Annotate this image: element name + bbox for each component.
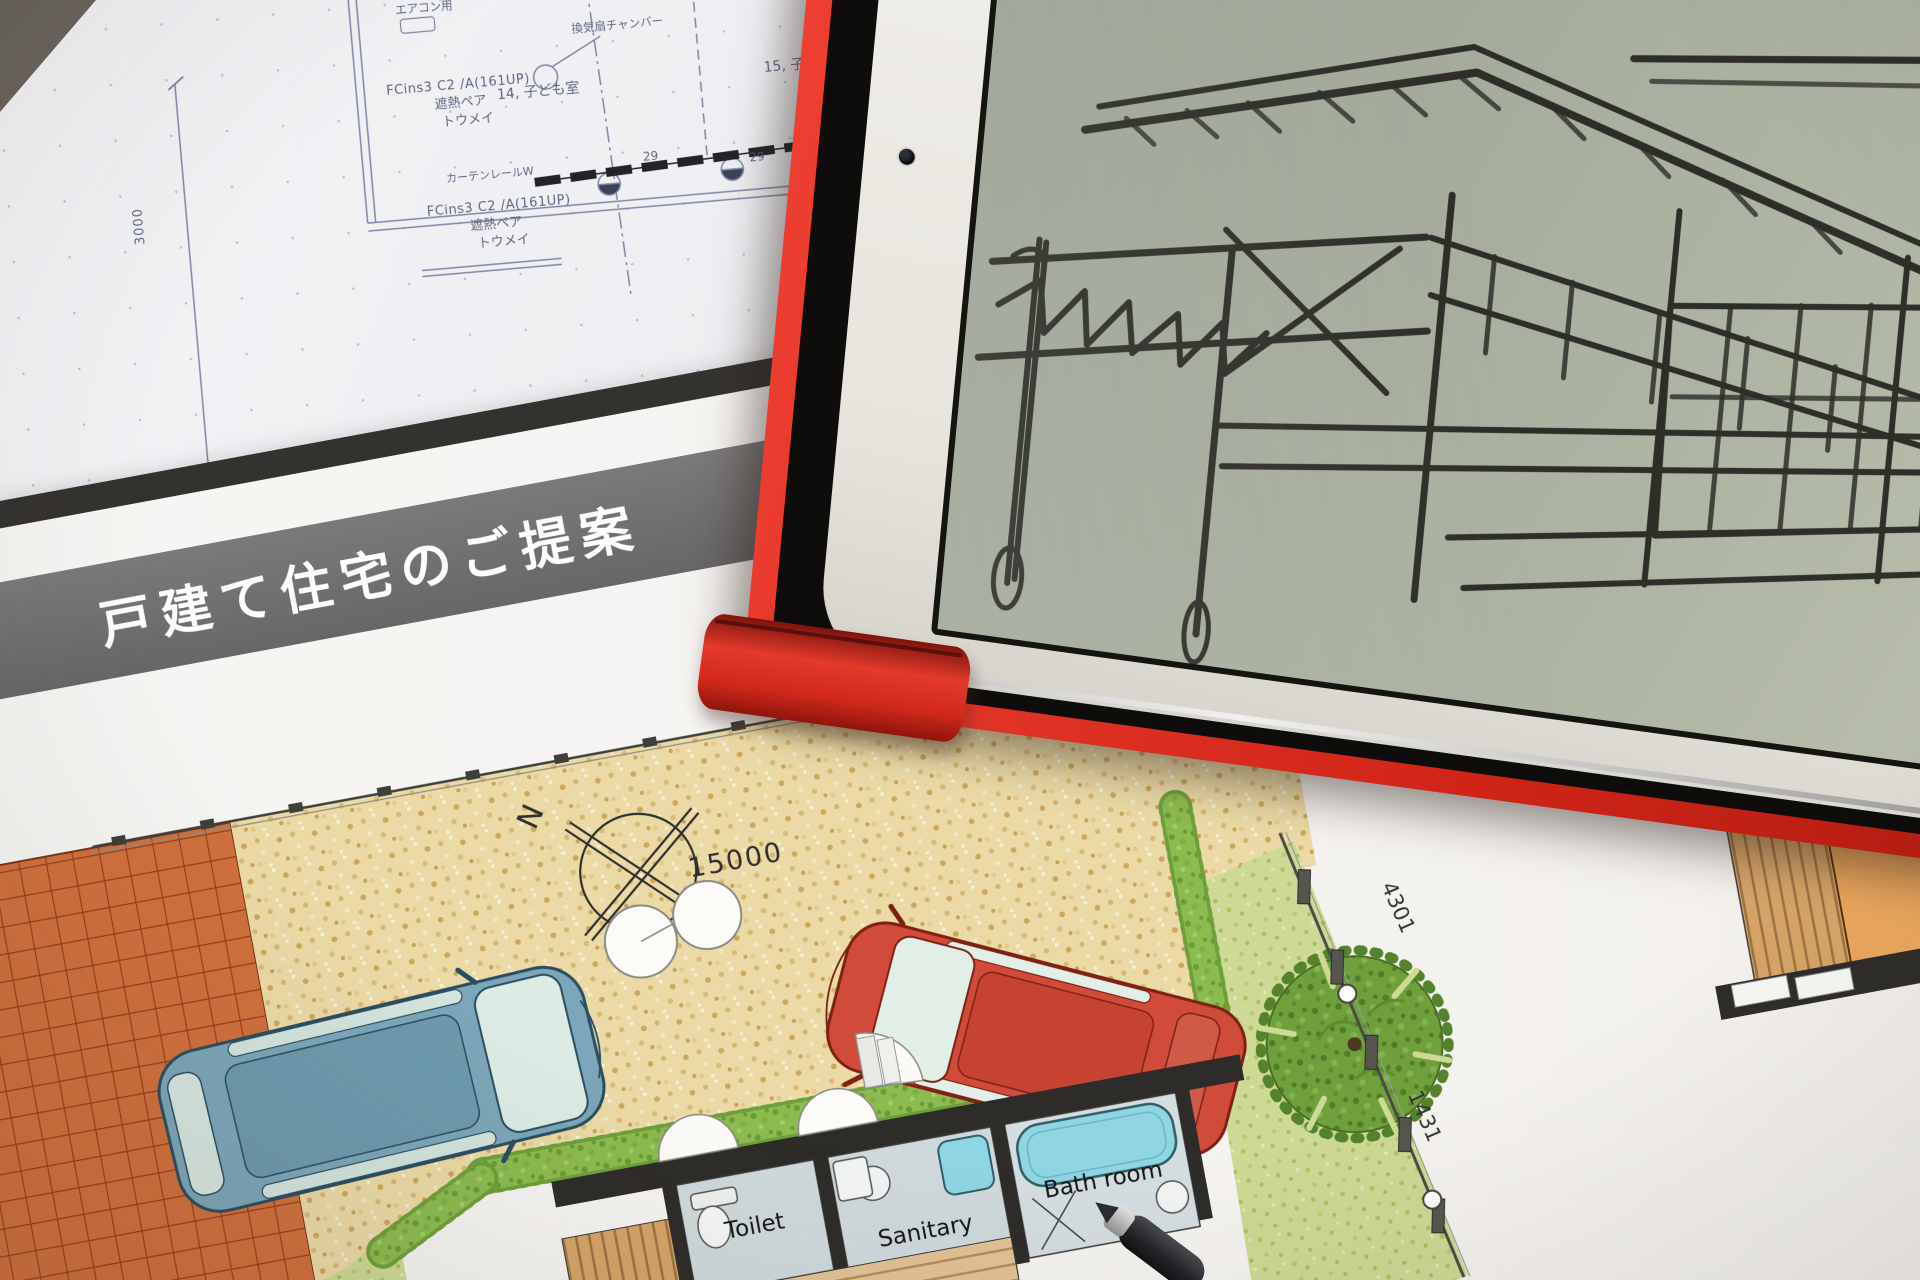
photo-scene: 3000 30 FCins3 C2 /A(161UP) 遮熱ペア トウメイ FC… (0, 0, 1920, 1280)
num-29a: 29 (642, 149, 658, 164)
dim-side-a: 4301 (1377, 878, 1420, 937)
num-29b: 29 (749, 149, 765, 164)
